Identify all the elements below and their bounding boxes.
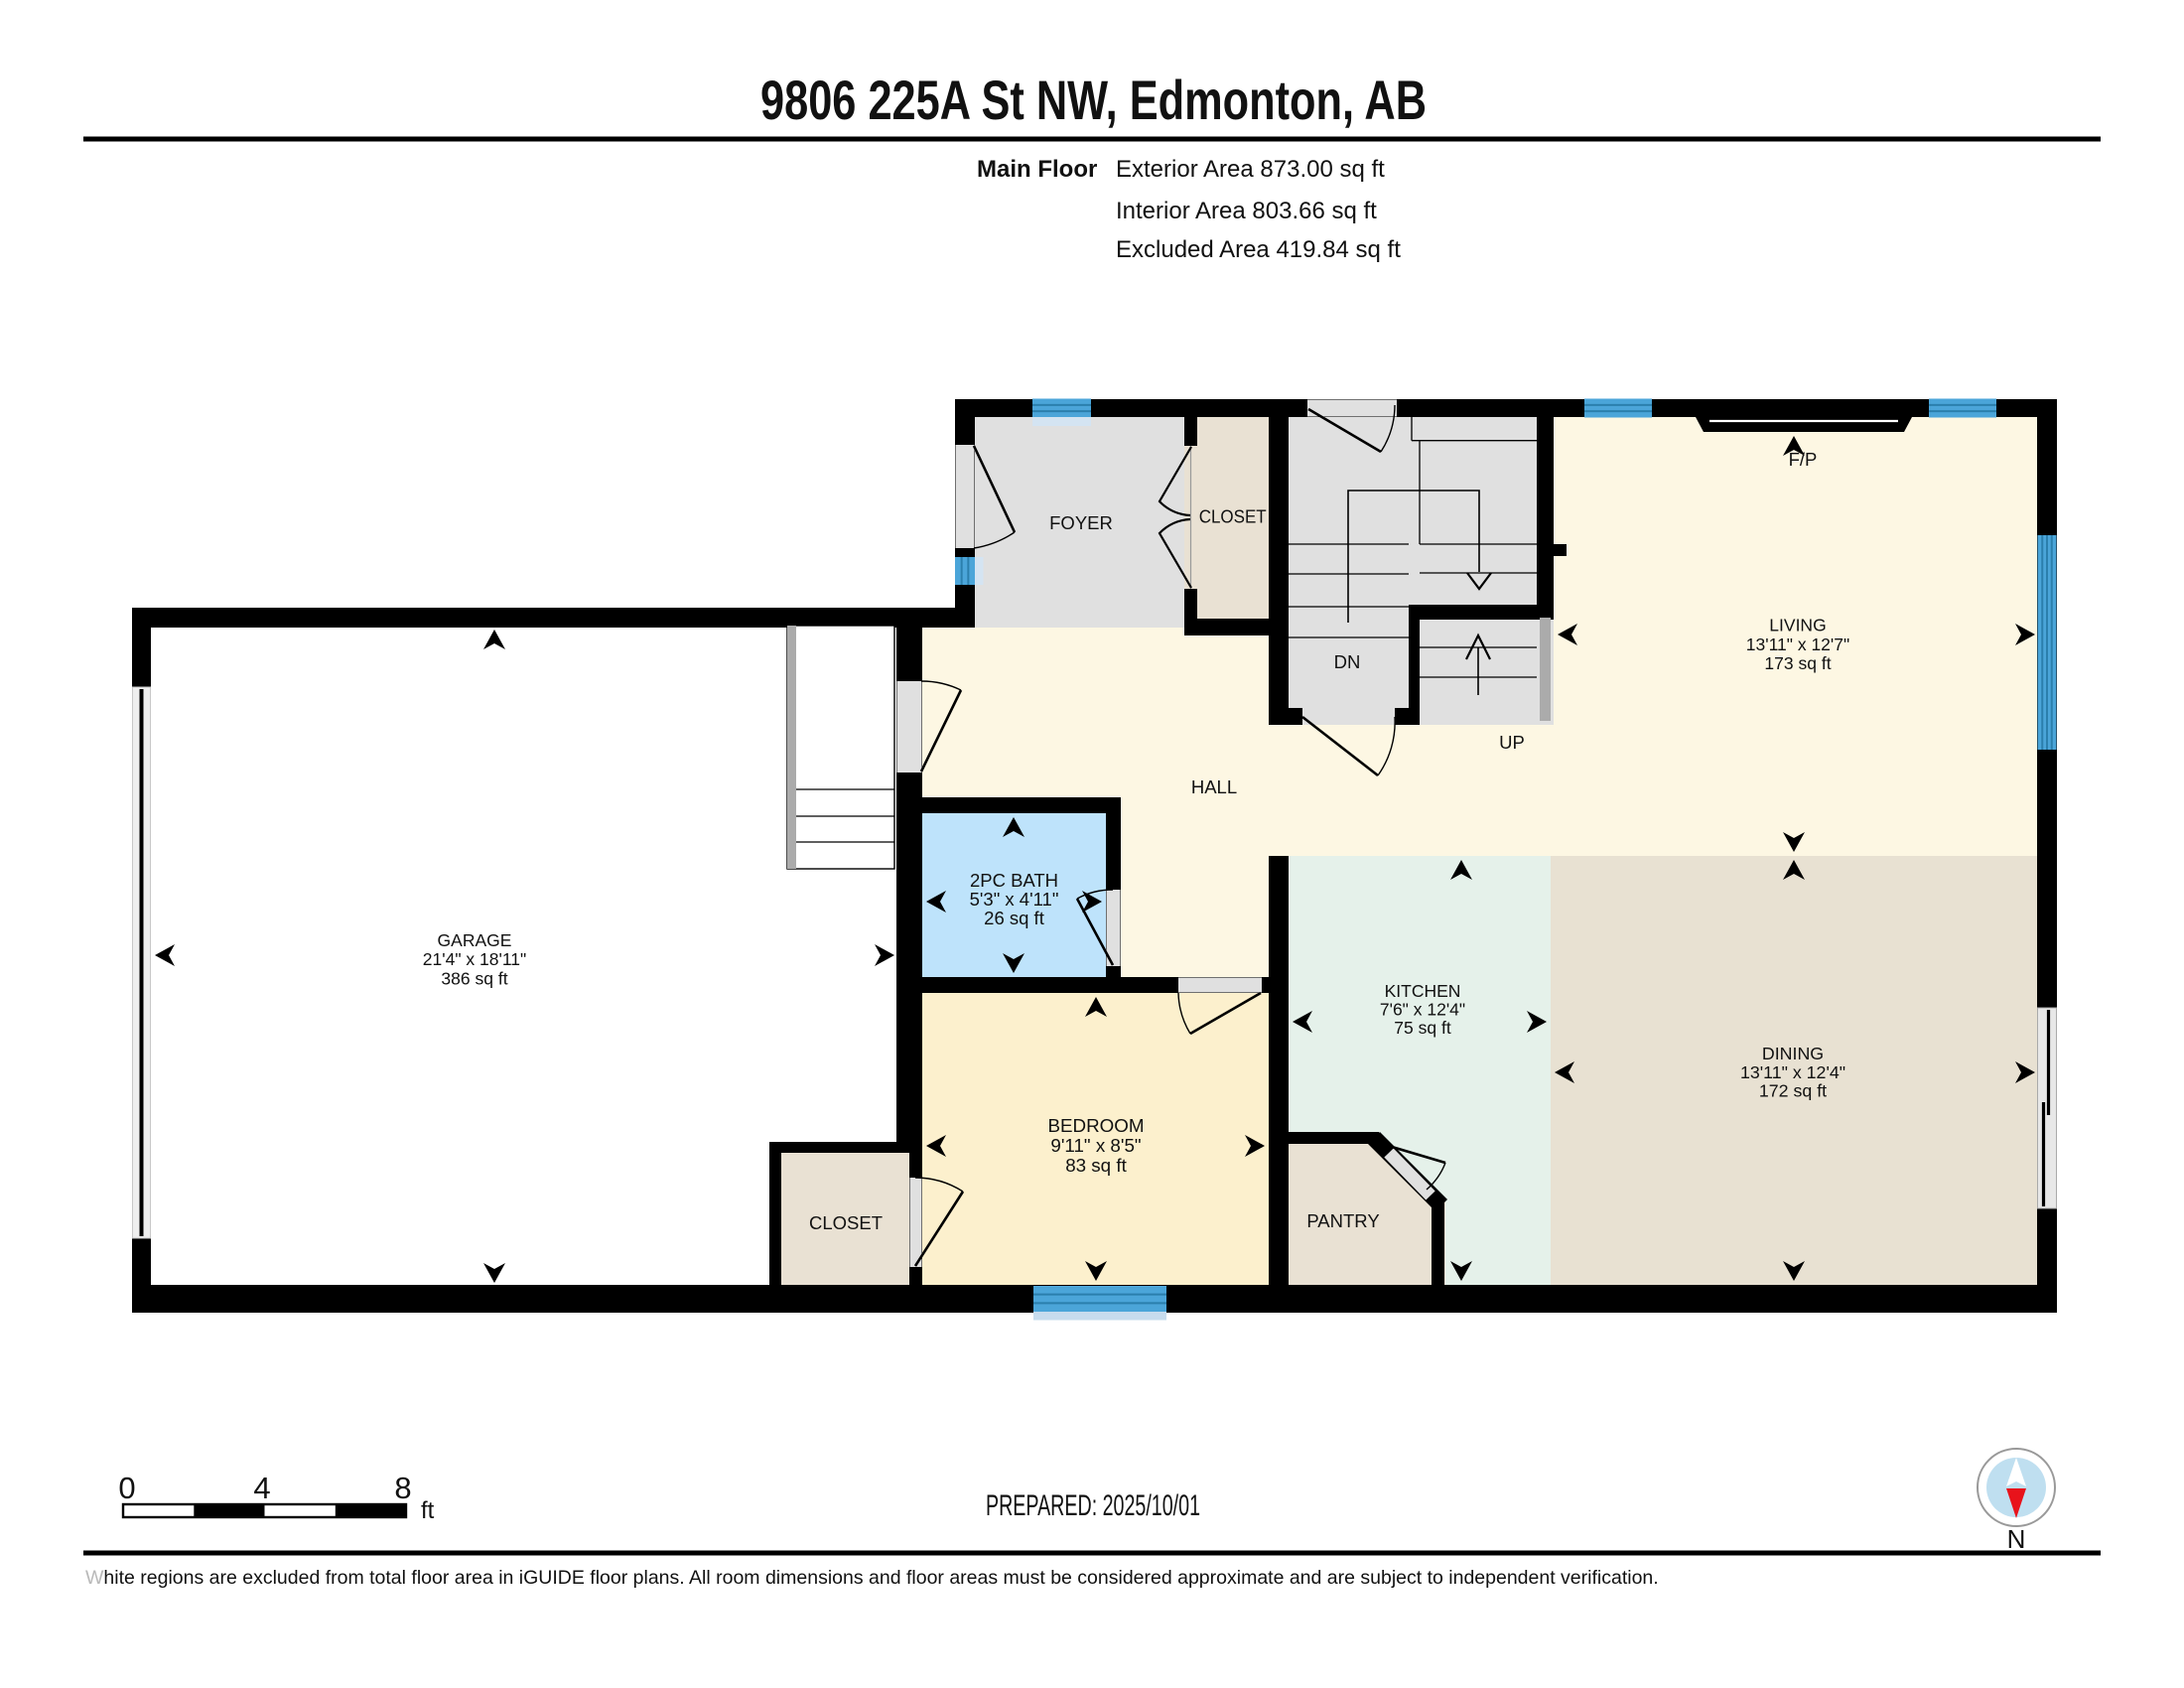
svg-text:BEDROOM: BEDROOM	[1047, 1115, 1144, 1136]
svg-text:2PC BATH: 2PC BATH	[970, 870, 1058, 891]
svg-text:CLOSET: CLOSET	[1199, 506, 1267, 527]
svg-text:4: 4	[253, 1471, 270, 1505]
svg-text:PANTRY: PANTRY	[1306, 1210, 1379, 1231]
svg-text:F/P: F/P	[1789, 449, 1818, 470]
svg-text:HALL: HALL	[1191, 776, 1237, 797]
svg-text:9806 225A St NW, Edmonton, AB: 9806 225A St NW, Edmonton, AB	[760, 69, 1427, 131]
svg-text:Exterior Area 873.00 sq ft: Exterior Area 873.00 sq ft	[1116, 156, 1385, 183]
svg-text:PREPARED: 2025/10/01: PREPARED: 2025/10/01	[986, 1489, 1200, 1522]
svg-text:White regions are excluded fro: White regions are excluded from total fl…	[85, 1567, 1659, 1589]
svg-text:CLOSET: CLOSET	[809, 1212, 883, 1233]
svg-text:KITCHEN: KITCHEN	[1385, 981, 1461, 1001]
svg-text:FOYER: FOYER	[1049, 512, 1113, 533]
svg-text:LIVING: LIVING	[1769, 616, 1826, 635]
svg-text:ft: ft	[421, 1497, 435, 1524]
svg-text:DN: DN	[1334, 651, 1361, 672]
svg-text:DINING: DINING	[1762, 1044, 1824, 1063]
svg-text:386 sq ft: 386 sq ft	[441, 968, 507, 988]
svg-text:75 sq ft: 75 sq ft	[1394, 1018, 1451, 1038]
svg-text:5'3" x 4'11": 5'3" x 4'11"	[970, 889, 1059, 910]
svg-text:Excluded Area 419.84 sq ft: Excluded Area 419.84 sq ft	[1116, 236, 1401, 263]
svg-text:Interior Area 803.66 sq ft: Interior Area 803.66 sq ft	[1116, 198, 1377, 224]
svg-text:13'11" x 12'4": 13'11" x 12'4"	[1740, 1062, 1845, 1082]
svg-text:172 sq ft: 172 sq ft	[1759, 1081, 1827, 1101]
svg-text:21'4" x 18'11": 21'4" x 18'11"	[423, 949, 526, 969]
svg-text:9'11" x 8'5": 9'11" x 8'5"	[1050, 1135, 1141, 1156]
svg-text:173 sq ft: 173 sq ft	[1764, 653, 1831, 673]
svg-text:83 sq ft: 83 sq ft	[1065, 1155, 1127, 1176]
svg-text:UP: UP	[1499, 732, 1525, 753]
svg-text:GARAGE: GARAGE	[438, 930, 512, 950]
svg-text:26 sq ft: 26 sq ft	[984, 908, 1044, 928]
svg-text:Main Floor: Main Floor	[977, 156, 1097, 183]
svg-text:N: N	[2007, 1524, 2026, 1554]
svg-text:7'6" x 12'4": 7'6" x 12'4"	[1380, 1000, 1465, 1020]
svg-text:8: 8	[394, 1471, 411, 1505]
svg-text:13'11" x 12'7": 13'11" x 12'7"	[1746, 634, 1849, 654]
svg-text:0: 0	[118, 1471, 135, 1505]
